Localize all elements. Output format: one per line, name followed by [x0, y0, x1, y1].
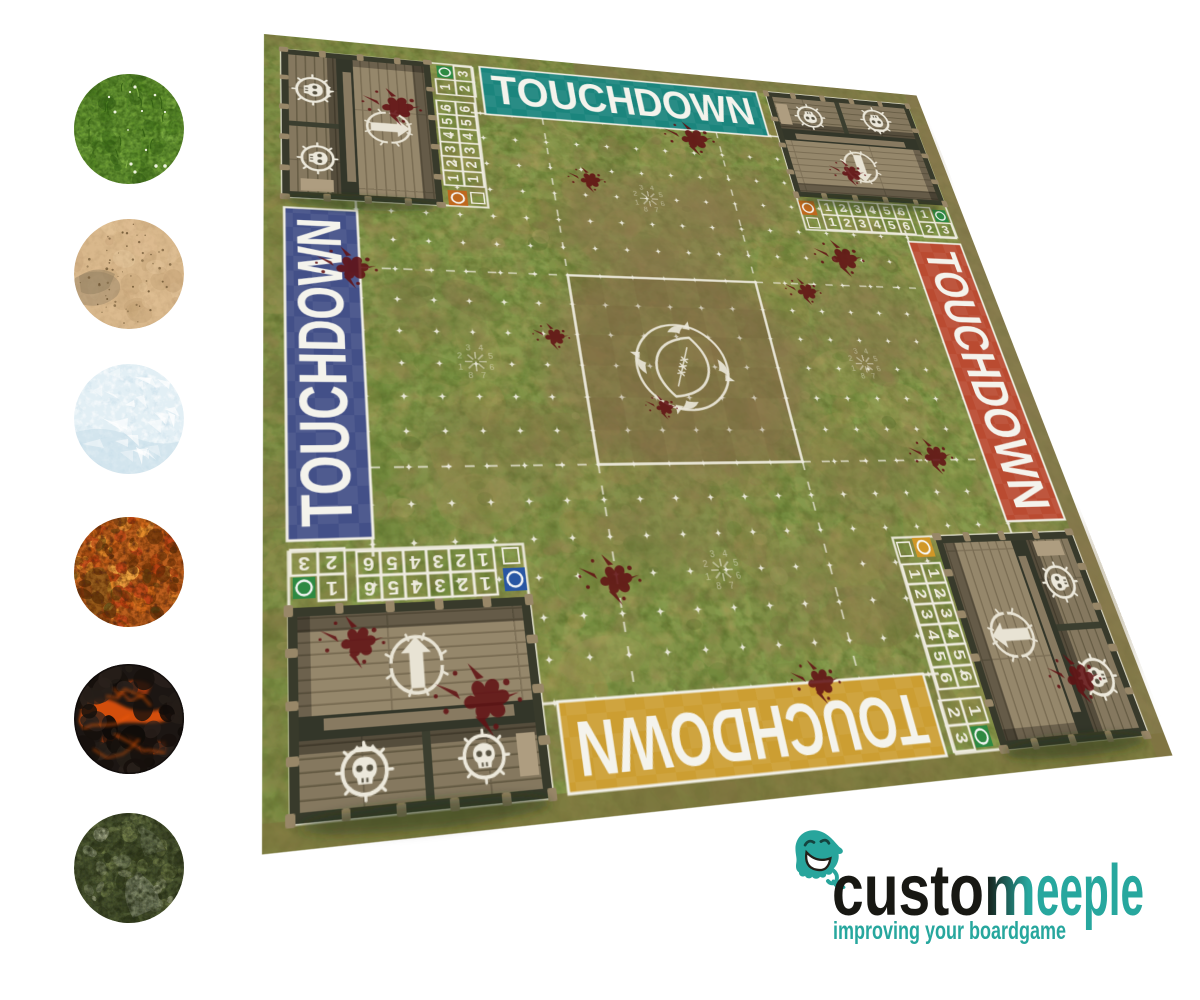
svg-text:improving your boardgame: improving your boardgame — [833, 917, 1066, 945]
